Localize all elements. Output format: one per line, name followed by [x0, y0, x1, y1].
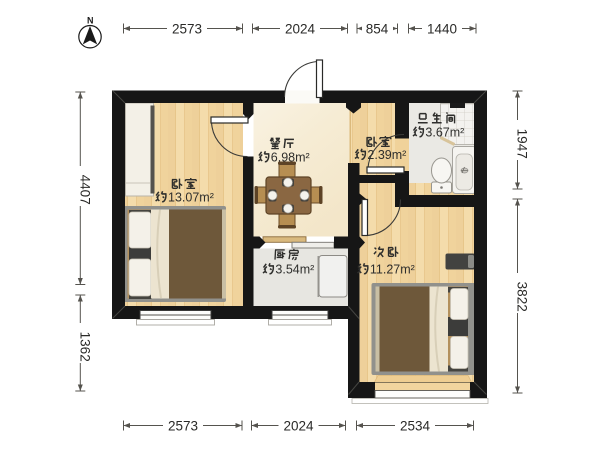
svg-text:854: 854 [366, 22, 389, 37]
svg-text:3.54m²: 3.54m² [275, 263, 314, 277]
svg-text:1947: 1947 [515, 129, 530, 159]
svg-text:11.27m²: 11.27m² [370, 263, 415, 277]
svg-text:2573: 2573 [172, 22, 202, 37]
svg-text:1362: 1362 [77, 332, 92, 362]
svg-text:2573: 2573 [168, 419, 198, 434]
svg-text:1440: 1440 [427, 22, 457, 37]
svg-text:6.98m²: 6.98m² [271, 151, 310, 165]
svg-text:2024: 2024 [285, 22, 316, 37]
svg-text:13.07m²: 13.07m² [168, 191, 214, 205]
svg-text:2.39m²: 2.39m² [367, 148, 406, 162]
svg-text:N: N [87, 16, 94, 26]
svg-text:3822: 3822 [515, 282, 530, 312]
svg-text:4407: 4407 [77, 175, 92, 205]
svg-text:2534: 2534 [400, 419, 431, 434]
svg-text:3.67m²: 3.67m² [425, 126, 464, 140]
svg-text:2024: 2024 [283, 419, 314, 434]
